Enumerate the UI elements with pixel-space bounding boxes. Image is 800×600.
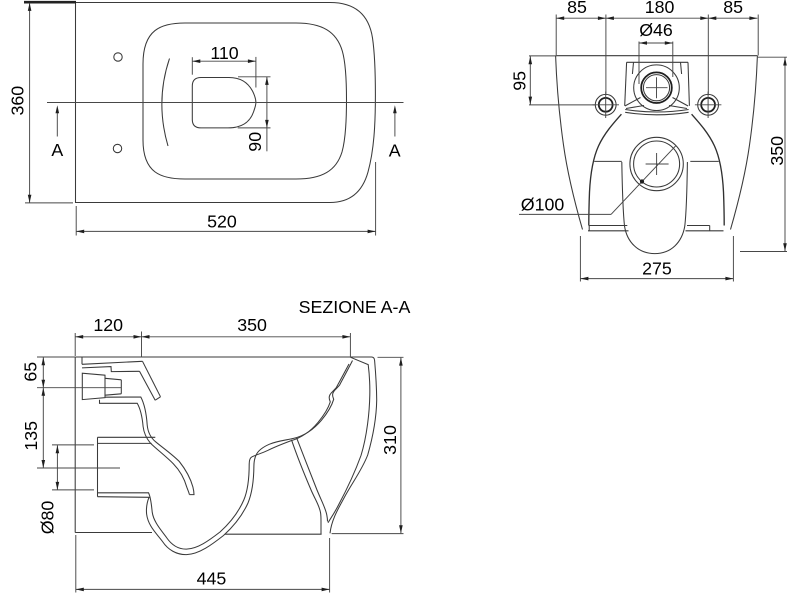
- svg-text:90: 90: [245, 132, 265, 152]
- svg-text:360: 360: [7, 86, 27, 116]
- svg-text:110: 110: [210, 43, 238, 63]
- svg-text:445: 445: [197, 569, 227, 589]
- svg-text:85: 85: [723, 0, 743, 17]
- svg-text:95: 95: [510, 71, 530, 91]
- svg-text:Ø100: Ø100: [521, 195, 565, 215]
- svg-text:350: 350: [237, 315, 267, 335]
- svg-text:65: 65: [20, 362, 40, 382]
- svg-text:120: 120: [93, 315, 123, 335]
- svg-text:275: 275: [642, 259, 672, 279]
- svg-text:A: A: [51, 140, 63, 160]
- svg-text:85: 85: [567, 0, 587, 17]
- svg-text:520: 520: [207, 212, 237, 232]
- svg-text:A: A: [389, 141, 401, 161]
- svg-text:SEZIONE A-A: SEZIONE A-A: [299, 297, 411, 317]
- svg-text:350: 350: [767, 136, 787, 166]
- svg-text:Ø46: Ø46: [639, 20, 673, 40]
- svg-text:310: 310: [380, 425, 400, 455]
- svg-text:Ø80: Ø80: [38, 501, 58, 535]
- svg-text:135: 135: [21, 421, 41, 451]
- svg-text:180: 180: [645, 0, 675, 17]
